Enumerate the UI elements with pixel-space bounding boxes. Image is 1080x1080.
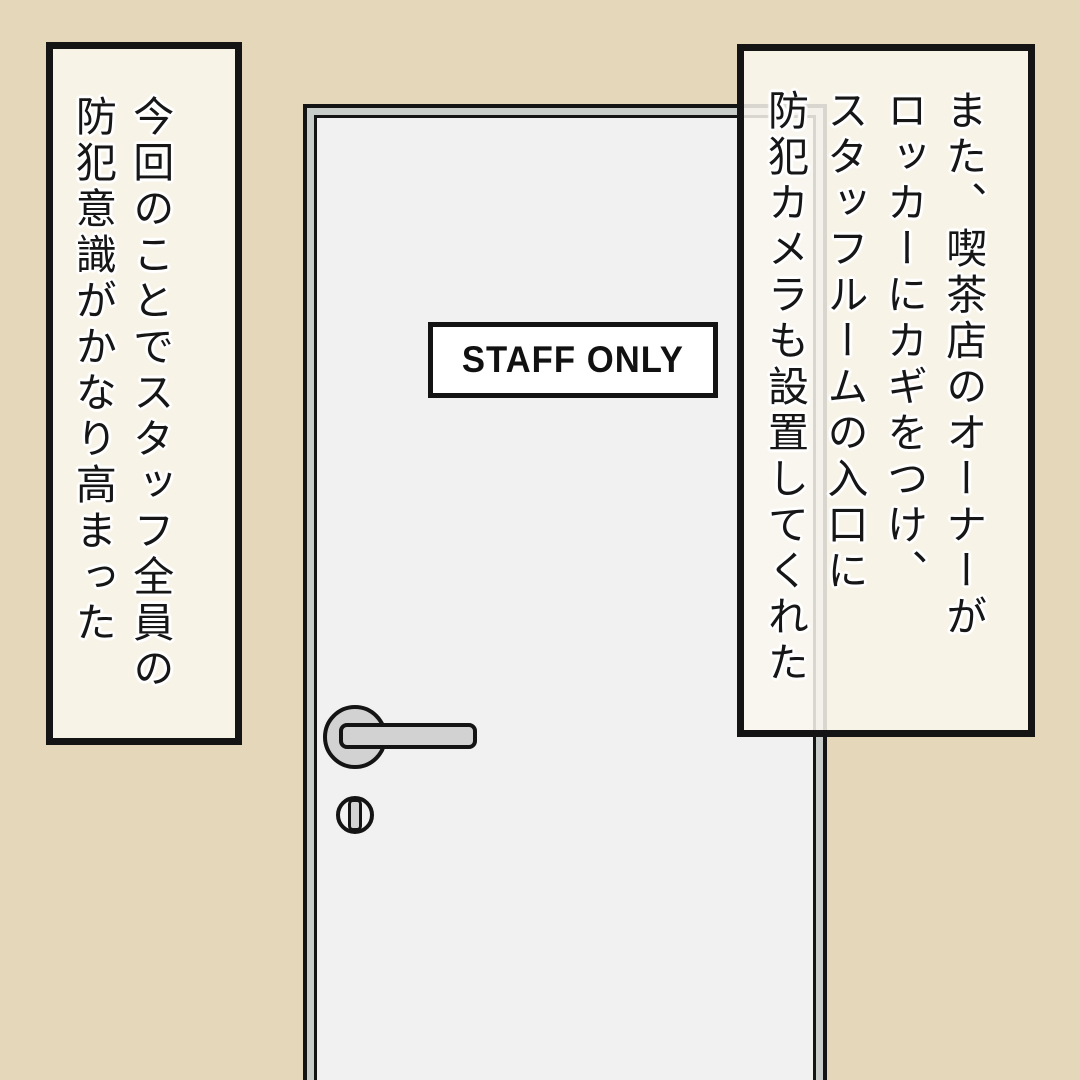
caption-left-text: 今回のことでスタッフ全員の 防犯意識がかなり高まった [63,95,178,720]
caption-right-text: また、喫茶店のオーナーが ロッカーにカギをつけ、 スタッフルームの入口に 防犯カ… [754,89,992,712]
caption-box-left: 今回のことでスタッフ全員の 防犯意識がかなり高まった [46,42,242,745]
thumbturn-lock-icon [336,796,374,834]
staff-only-sign-label: STAFF ONLY [462,339,684,381]
comic-panel: STAFF ONLY 今回のことでスタッフ全員の 防犯意識がかなり高まった また… [0,0,1080,1080]
door-handle-lever-icon [339,723,477,749]
staff-only-sign: STAFF ONLY [428,322,718,398]
thumbturn-knob-icon [348,799,362,831]
caption-box-right: また、喫茶店のオーナーが ロッカーにカギをつけ、 スタッフルームの入口に 防犯カ… [737,44,1035,737]
